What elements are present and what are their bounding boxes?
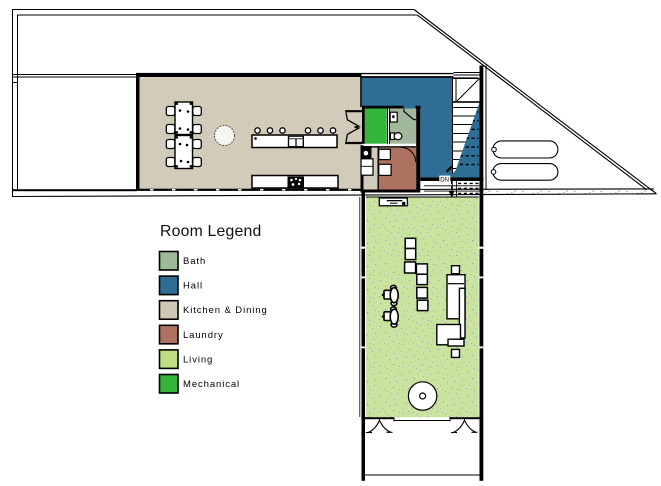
svg-text:Laundry: Laundry: [183, 330, 224, 341]
svg-text:Kitchen & Dining: Kitchen & Dining: [183, 305, 268, 316]
svg-text:Hall: Hall: [183, 281, 203, 292]
svg-text:Living: Living: [183, 354, 213, 365]
svg-text:DN: DN: [440, 177, 449, 183]
svg-text:Mechanical: Mechanical: [183, 379, 240, 390]
svg-text:Bath: Bath: [183, 256, 206, 267]
svg-text:Room Legend: Room Legend: [160, 223, 261, 240]
